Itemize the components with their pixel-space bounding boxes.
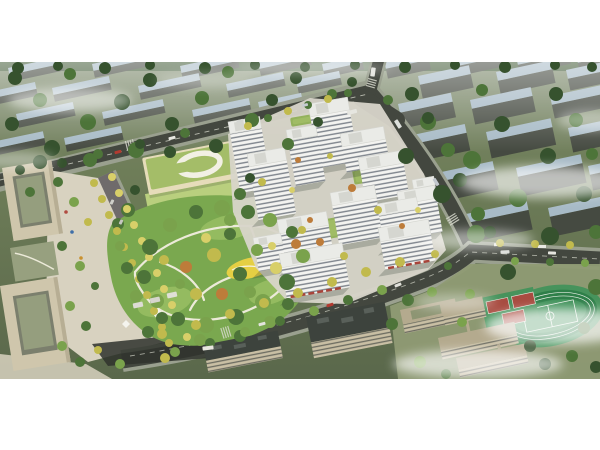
tree xyxy=(286,226,298,238)
tree xyxy=(309,306,319,316)
tree xyxy=(343,295,353,305)
tree xyxy=(142,239,158,255)
tree xyxy=(405,87,419,101)
tree xyxy=(57,341,67,351)
tree xyxy=(183,333,191,341)
tree xyxy=(395,257,405,267)
fog-wisp xyxy=(423,230,533,250)
tree xyxy=(160,353,170,363)
tree xyxy=(224,228,236,240)
tree xyxy=(541,227,559,245)
tree xyxy=(80,114,96,130)
tree xyxy=(209,139,223,153)
tree xyxy=(171,312,185,326)
tree xyxy=(214,200,230,216)
tree xyxy=(549,87,563,101)
tree xyxy=(566,241,574,249)
tree xyxy=(415,207,421,213)
tree xyxy=(291,239,301,249)
tree xyxy=(175,279,185,289)
tree xyxy=(93,149,103,159)
tree xyxy=(383,95,393,105)
tree xyxy=(163,218,177,232)
tree xyxy=(153,269,161,277)
tree xyxy=(224,214,236,226)
tree xyxy=(347,77,357,87)
tree xyxy=(233,267,247,281)
tree xyxy=(164,146,176,158)
tree xyxy=(194,334,206,346)
tree xyxy=(53,177,63,187)
vehicle xyxy=(500,250,509,254)
tree xyxy=(159,255,169,265)
tree xyxy=(115,359,125,369)
tree xyxy=(316,238,324,246)
tree xyxy=(98,195,106,203)
tree xyxy=(195,91,209,105)
tree xyxy=(295,157,301,163)
tree xyxy=(143,291,151,299)
tree xyxy=(168,301,176,309)
tree xyxy=(540,148,556,164)
tree xyxy=(581,259,589,267)
tree xyxy=(463,151,481,169)
tree xyxy=(75,261,85,271)
tree xyxy=(258,178,266,186)
tree xyxy=(422,112,434,124)
tree xyxy=(84,218,92,226)
tree xyxy=(130,185,140,195)
tree xyxy=(5,117,19,131)
tree xyxy=(234,188,246,200)
tree xyxy=(142,326,154,338)
fog-wisp xyxy=(415,294,495,310)
tree xyxy=(225,309,235,319)
tree xyxy=(289,187,295,193)
tree xyxy=(374,206,382,214)
office-terrace-garden xyxy=(10,241,59,281)
tree xyxy=(279,274,295,290)
tree xyxy=(130,290,142,302)
tree xyxy=(259,298,269,308)
tree xyxy=(268,242,276,250)
vehicle xyxy=(548,251,556,254)
tree xyxy=(282,298,294,310)
tree xyxy=(264,316,276,328)
tree xyxy=(121,262,133,274)
tree xyxy=(201,233,211,243)
tree xyxy=(64,68,76,80)
tree xyxy=(115,189,123,197)
tree xyxy=(160,285,168,293)
tree xyxy=(275,316,285,326)
tree xyxy=(361,267,371,277)
tree xyxy=(270,262,282,274)
tree xyxy=(245,173,255,183)
tree xyxy=(494,116,510,132)
tree xyxy=(587,62,597,72)
tree xyxy=(191,320,201,330)
tree xyxy=(348,184,356,192)
tree xyxy=(190,288,202,300)
tree xyxy=(143,73,157,87)
tree xyxy=(8,71,22,85)
tree xyxy=(546,258,554,266)
tree xyxy=(105,211,113,219)
tree xyxy=(313,117,323,127)
fog-wisp xyxy=(155,72,255,88)
tree xyxy=(284,107,292,115)
tree xyxy=(566,350,578,362)
tree xyxy=(457,317,467,327)
tree xyxy=(444,262,452,270)
tree xyxy=(57,241,67,251)
tree xyxy=(156,312,168,324)
tree xyxy=(340,252,348,260)
tree xyxy=(586,148,598,160)
tree xyxy=(44,140,60,156)
tree xyxy=(113,227,121,235)
plaza-umbrella xyxy=(79,256,83,260)
tree xyxy=(307,217,313,223)
fog-wisp xyxy=(8,88,132,112)
tree xyxy=(264,114,272,122)
tree xyxy=(180,261,192,273)
tree xyxy=(327,277,337,287)
tree xyxy=(240,327,250,337)
tree xyxy=(327,153,333,159)
aerial-rendering xyxy=(0,62,600,379)
tree xyxy=(207,248,221,262)
tree xyxy=(476,84,488,96)
tree xyxy=(399,223,405,229)
tree xyxy=(241,205,255,219)
tree xyxy=(150,307,158,315)
tree xyxy=(251,244,263,256)
tree xyxy=(344,89,352,97)
tree xyxy=(170,347,180,357)
plaza-umbrella xyxy=(70,230,74,234)
tree xyxy=(65,301,75,311)
fog-wisp xyxy=(393,350,563,378)
tree xyxy=(402,294,414,306)
tree xyxy=(137,270,151,284)
tree xyxy=(75,357,85,367)
tree xyxy=(244,286,256,298)
bus-shelter xyxy=(538,245,546,248)
tree xyxy=(165,339,173,347)
tree xyxy=(433,185,451,203)
tree xyxy=(398,148,414,164)
tree xyxy=(500,264,516,280)
tree xyxy=(81,321,91,331)
screenshot-canvas xyxy=(0,0,600,450)
tree xyxy=(180,128,190,138)
tree xyxy=(324,95,332,103)
tree xyxy=(157,329,167,339)
tree xyxy=(123,205,131,213)
tree xyxy=(94,346,102,354)
tree xyxy=(135,139,145,149)
tree xyxy=(165,117,179,131)
tree xyxy=(296,249,310,263)
tree xyxy=(244,122,252,130)
tree xyxy=(293,288,303,298)
tree xyxy=(377,285,387,295)
tree xyxy=(90,179,98,187)
tree xyxy=(282,138,294,150)
tree xyxy=(130,221,138,229)
tree xyxy=(25,187,35,197)
tree xyxy=(386,318,398,330)
tree xyxy=(57,158,67,168)
tree xyxy=(511,257,519,265)
tree xyxy=(91,282,99,290)
plaza-umbrella xyxy=(64,210,68,214)
tree xyxy=(69,197,79,207)
tree xyxy=(115,241,125,251)
tree xyxy=(216,288,228,300)
tree xyxy=(108,173,116,181)
tree xyxy=(298,226,306,234)
tree xyxy=(99,62,111,74)
tree xyxy=(266,94,278,106)
tree xyxy=(441,143,455,157)
tree xyxy=(431,250,439,258)
tree xyxy=(263,213,277,227)
tree xyxy=(189,205,203,219)
tree xyxy=(471,207,485,221)
